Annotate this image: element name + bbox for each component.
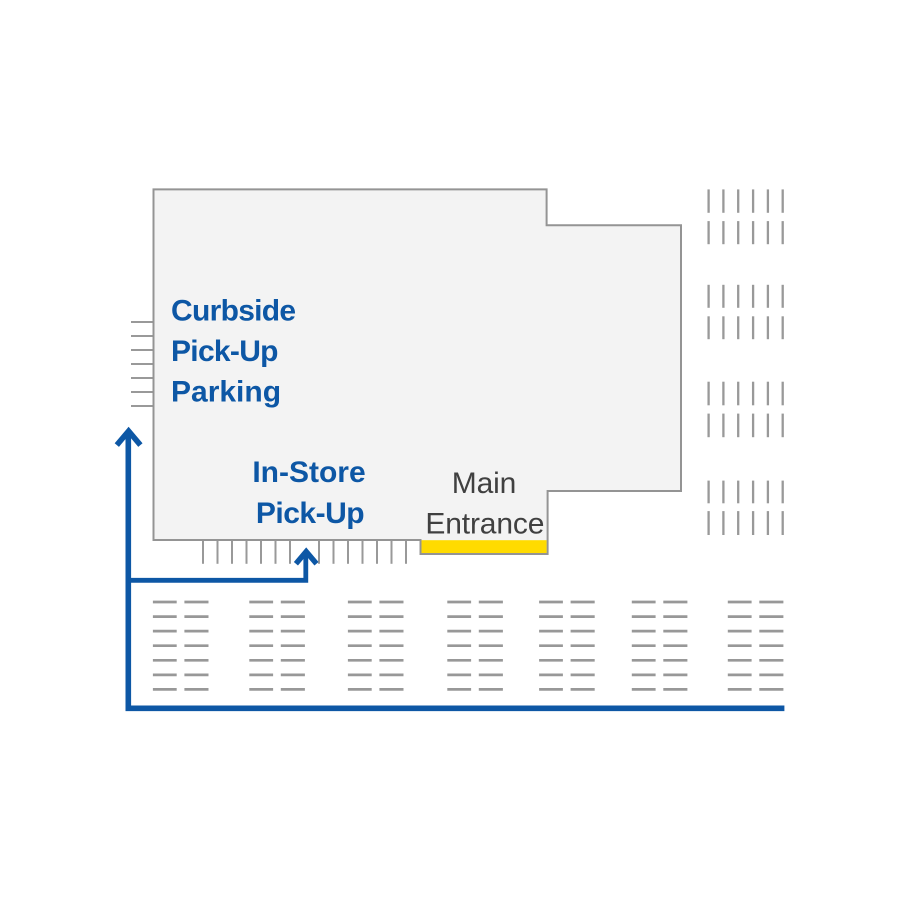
svg-text:Main: Main [452, 467, 516, 500]
svg-text:Parking: Parking [171, 375, 281, 408]
svg-text:Pick-Up: Pick-Up [256, 497, 364, 530]
svg-text:Pick-Up: Pick-Up [171, 335, 278, 368]
svg-text:In-Store: In-Store [252, 456, 365, 489]
svg-text:Entrance: Entrance [425, 508, 544, 541]
svg-text:Curbside: Curbside [171, 294, 295, 327]
